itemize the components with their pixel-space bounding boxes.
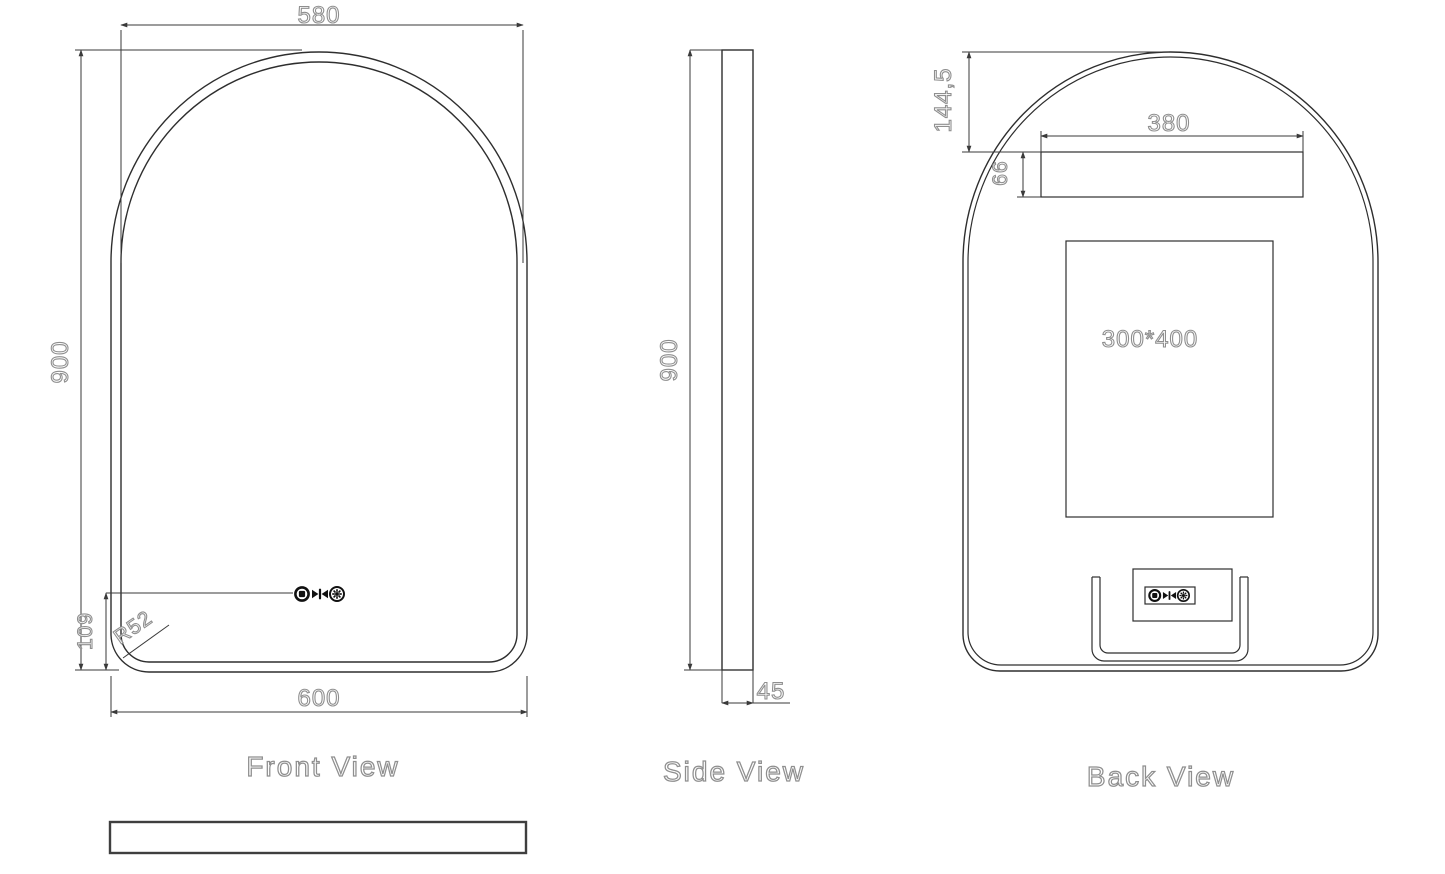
front-dim-bottom-width: 600 — [111, 676, 527, 717]
front-control-buttons — [295, 587, 344, 601]
back-dim-top-offset: 144,5 — [930, 52, 1169, 152]
bottom-profile-strip — [110, 822, 526, 853]
back-dim-bracket-width: 380 — [1041, 110, 1303, 152]
back-view-label: Back View — [1087, 761, 1235, 792]
front-dim-buttons-offset: 109 — [74, 593, 293, 670]
back-u-channel — [1092, 577, 1248, 661]
front-corner-radius-callout: R52 — [110, 606, 169, 658]
side-dim-thickness-value: 45 — [757, 678, 786, 705]
back-junction-plate: 300*400 — [1066, 241, 1273, 517]
front-dim-buttons-offset-value: 109 — [74, 612, 97, 650]
side-dim-height: 900 — [656, 50, 753, 670]
back-dim-bracket-height-value: 66 — [989, 160, 1012, 185]
back-outline-inner — [968, 57, 1373, 665]
back-junction-plate-size: 300*400 — [1102, 326, 1198, 353]
drawing-canvas: 580 900 109 R52 600 Front Vi — [0, 0, 1445, 874]
front-dim-height-value: 900 — [47, 340, 74, 383]
back-outline-outer — [963, 52, 1378, 671]
front-dim-top-width: 580 — [121, 2, 523, 263]
side-profile-body — [722, 50, 753, 670]
front-view: 580 900 109 R52 600 Front Vi — [47, 2, 527, 782]
back-dim-bracket-width-value: 380 — [1147, 110, 1190, 137]
side-view: 900 45 Side View — [656, 50, 805, 787]
back-dim-top-offset-value: 144,5 — [930, 67, 957, 132]
front-dim-bottom-width-value: 600 — [297, 685, 340, 712]
front-dim-top-width-value: 580 — [297, 2, 340, 29]
back-control-buttons — [1149, 590, 1189, 601]
back-view: 380 144,5 66 300*400 — [930, 52, 1378, 792]
side-dim-height-value: 900 — [656, 338, 683, 381]
front-dim-height: 900 — [47, 50, 302, 670]
front-view-label: Front View — [246, 751, 399, 782]
front-corner-radius-value: R52 — [110, 606, 157, 649]
back-dim-bracket-height: 66 — [989, 152, 1041, 197]
back-hanging-bracket — [1041, 152, 1303, 197]
side-view-label: Side View — [663, 756, 805, 787]
front-mirror-frame — [111, 52, 527, 672]
technical-drawing-sheet: 580 900 109 R52 600 Front Vi — [0, 0, 1445, 874]
back-control-box — [1133, 569, 1232, 621]
side-dim-thickness: 45 — [722, 670, 790, 705]
